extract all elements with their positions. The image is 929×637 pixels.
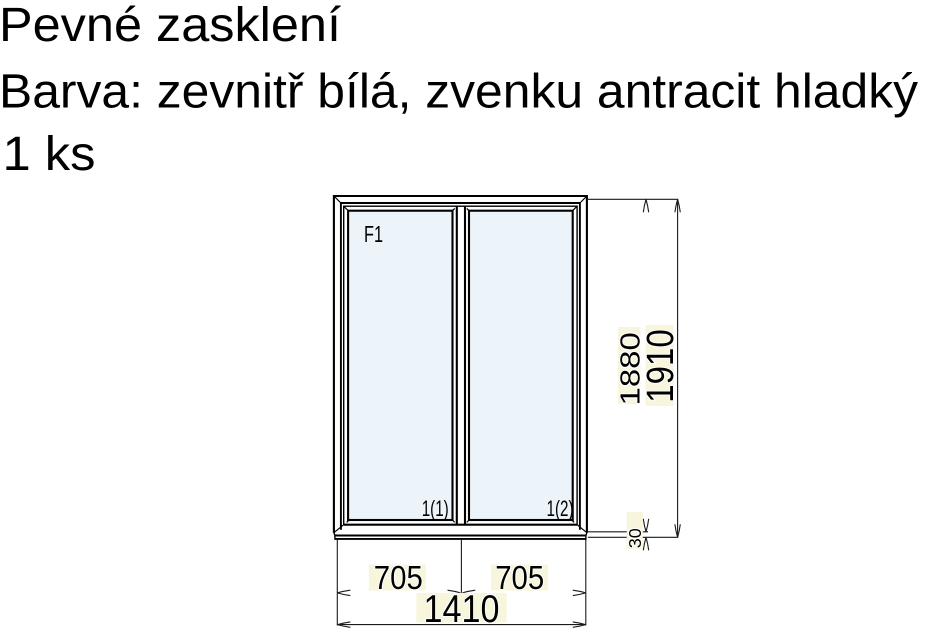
svg-text:1 ks: 1 ks (3, 128, 96, 181)
svg-text:Pevné zasklení: Pevné zasklení (0, 0, 342, 52)
svg-text:1410: 1410 (424, 588, 500, 631)
svg-text:30: 30 (625, 528, 645, 548)
svg-text:705: 705 (374, 559, 423, 596)
svg-text:705: 705 (495, 559, 544, 596)
svg-text:F1: F1 (364, 221, 383, 247)
svg-text:Barva: zevnitř bílá, zvenku an: Barva: zevnitř bílá, zvenku antracit hla… (0, 66, 918, 119)
svg-text:1(1): 1(1) (422, 496, 449, 521)
svg-text:1(2): 1(2) (547, 496, 574, 521)
svg-text:1910: 1910 (640, 329, 682, 403)
